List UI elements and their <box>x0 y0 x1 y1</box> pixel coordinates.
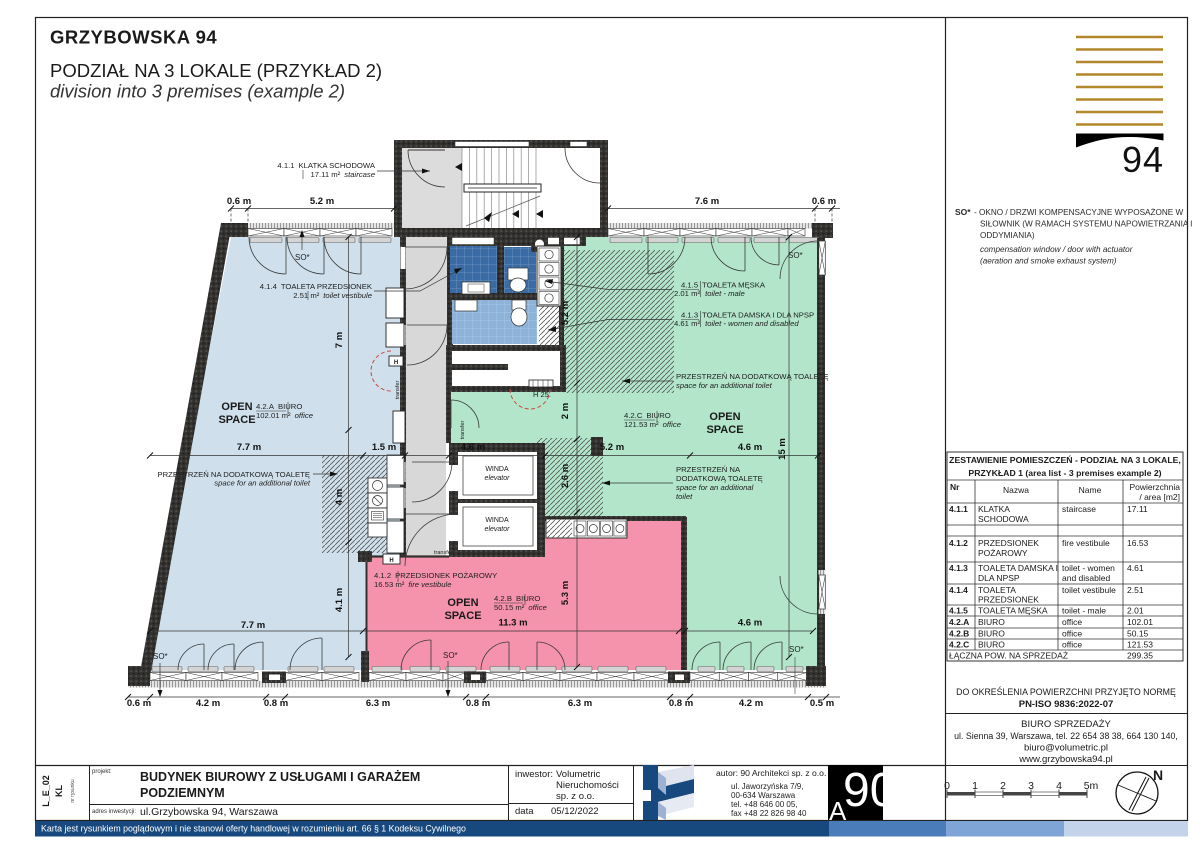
svg-text:4.2 m: 4.2 m <box>196 698 220 709</box>
svg-text:2.01: 2.01 <box>1127 606 1144 616</box>
svg-text:ul. Sienna 39, Warszawa, tel.: ul. Sienna 39, Warszawa, tel. 22 654 38 … <box>954 731 1178 741</box>
svg-text:102.01: 102.01 <box>1127 617 1153 627</box>
svg-text:4.1.4: 4.1.4 <box>949 585 968 595</box>
svg-text:www.grzybowska94.pl: www.grzybowska94.pl <box>1018 754 1112 765</box>
svg-text:4.1.1: 4.1.1 <box>949 504 968 514</box>
svg-text:0.5 m: 0.5 m <box>810 698 834 709</box>
svg-text:2 m: 2 m <box>560 403 571 419</box>
svg-text:SO*: SO* <box>789 645 804 654</box>
svg-text:SO*: SO* <box>295 253 310 262</box>
svg-text:4.6 m: 4.6 m <box>738 618 762 629</box>
svg-text:SIŁOWNIK (W RAMACH SYSTEMU NAP: SIŁOWNIK (W RAMACH SYSTEMU NAPOWIETRZANI… <box>980 220 1192 229</box>
svg-text:PRZEDSIONEK: PRZEDSIONEK <box>978 538 1039 548</box>
svg-text:7.7 m: 7.7 m <box>237 442 261 453</box>
svg-text:PRZEDSIONEK: PRZEDSIONEK <box>978 595 1039 605</box>
svg-text:7.7 m: 7.7 m <box>241 620 265 631</box>
svg-text:toilet - male: toilet - male <box>1062 606 1106 616</box>
svg-text:N: N <box>1153 767 1163 783</box>
svg-text:4.2 m: 4.2 m <box>739 698 763 709</box>
svg-text:4.1.1KLATKA SCHODOWA: 4.1.1KLATKA SCHODOWA <box>277 161 375 170</box>
svg-text:SCHODOWA: SCHODOWA <box>978 514 1029 524</box>
svg-text:compensation window / door wit: compensation window / door with actuator <box>980 245 1133 254</box>
svg-text:11.3 m: 11.3 m <box>498 618 527 629</box>
svg-text:Karta jest rysunkiem poglądowy: Karta jest rysunkiem poglądowym i nie st… <box>41 824 466 834</box>
svg-text:50.15 m²office: 50.15 m²office <box>494 603 547 612</box>
svg-text:5.3 m: 5.3 m <box>560 581 571 605</box>
svg-text:2.51: 2.51 <box>1127 585 1144 595</box>
svg-text:121.53: 121.53 <box>1127 640 1153 650</box>
svg-text:6.3 m: 6.3 m <box>568 698 592 709</box>
svg-text:H 25.: H 25. <box>533 390 551 399</box>
svg-text:94: 94 <box>1122 139 1164 180</box>
svg-text:16.53: 16.53 <box>1127 538 1149 548</box>
svg-text:4.1.4TOALETA PRZEDSIONEK: 4.1.4TOALETA PRZEDSIONEK <box>260 282 373 291</box>
svg-text:DO OKREŚLENIA POWIERZCHNI PRZY: DO OKREŚLENIA POWIERZCHNI PRZYJĘTO NORMĘ <box>956 686 1176 697</box>
svg-text:17.11: 17.11 <box>1127 504 1148 514</box>
svg-text:office: office <box>1062 640 1082 650</box>
svg-text:TOALETA DAMSKA I: TOALETA DAMSKA I <box>978 563 1058 573</box>
svg-text:50.15: 50.15 <box>1127 629 1149 639</box>
svg-text:space for an additional toilet: space for an additional toilet <box>676 381 773 390</box>
svg-text:4.6 m: 4.6 m <box>738 442 762 453</box>
svg-text:DODATKOWĄ TOALETĘ: DODATKOWĄ TOALETĘ <box>676 474 763 483</box>
svg-text:- OKNO / DRZWI KOMPENSACYJNE W: - OKNO / DRZWI KOMPENSACYJNE WYPOSAŻONE … <box>974 207 1184 217</box>
svg-text:fire vestibule: fire vestibule <box>1062 538 1110 548</box>
svg-text:299.35: 299.35 <box>1127 651 1153 661</box>
svg-text:ul. Jaworzyńska 7/9,: ul. Jaworzyńska 7/9, <box>731 782 803 791</box>
svg-text:BIURO: BIURO <box>978 629 1005 639</box>
svg-text:0.8 m: 0.8 m <box>264 698 288 709</box>
svg-text:autor: 90 Architekci sp. z o.: autor: 90 Architekci sp. z o.o. <box>716 768 826 778</box>
svg-text:transfer: transfer <box>434 550 453 556</box>
svg-text:transfer: transfer <box>395 381 401 400</box>
svg-text:POŻAROWY: POŻAROWY <box>978 548 1028 558</box>
svg-text:sp. z o.o.: sp. z o.o. <box>556 791 595 802</box>
svg-text:space for an additional toilet: space for an additional toilet <box>214 479 311 488</box>
svg-text:division into 3 premises (exam: division into 3 premises (example 2) <box>50 81 345 102</box>
svg-text:1.5 m: 1.5 m <box>372 442 396 453</box>
svg-text:PODZIAŁ NA 3 LOKALE (PRZYKŁAD: PODZIAŁ NA 3 LOKALE (PRZYKŁAD 2) <box>50 60 382 81</box>
svg-text:elevator: elevator <box>485 475 511 482</box>
svg-text:SO*: SO* <box>153 652 168 661</box>
svg-text:4.61 m²toilet - women and disa: 4.61 m²toilet - women and disabled <box>674 319 799 328</box>
svg-text:tel. +48 646 00 05,: tel. +48 646 00 05, <box>731 800 798 809</box>
svg-text:05/12/2022: 05/12/2022 <box>551 806 599 817</box>
svg-text:Volumetric: Volumetric <box>556 769 601 780</box>
svg-text:ZESTAWIENIE POMIESZCZEŃ - PODZ: ZESTAWIENIE POMIESZCZEŃ - PODZIAŁ NA 3 L… <box>949 455 1181 465</box>
svg-text:H: H <box>394 360 398 366</box>
svg-text:6.3 m: 6.3 m <box>366 698 390 709</box>
svg-text:5.2 m: 5.2 m <box>600 442 624 453</box>
svg-text:BUDYNEK BIUROWY Z USŁUGAMI I G: BUDYNEK BIUROWY Z USŁUGAMI I GARAŻEM <box>140 769 420 784</box>
svg-text:and disabled: and disabled <box>1062 573 1110 583</box>
svg-text:BIURO SPRZEDAŻY: BIURO SPRZEDAŻY <box>1021 719 1111 730</box>
svg-text:ŁĄCZNA POW. NA SPRZEDAŻ: ŁĄCZNA POW. NA SPRZEDAŻ <box>949 651 1068 661</box>
svg-text:PRZYKŁAD 1 (area list - 3 prem: PRZYKŁAD 1 (area list - 3 premises examp… <box>968 468 1161 478</box>
svg-text:adres inwestycji:: adres inwestycji: <box>92 809 136 815</box>
svg-text:Nieruchomości: Nieruchomości <box>556 780 619 791</box>
svg-text:0.6 m: 0.6 m <box>127 698 151 709</box>
svg-text:space for an additional: space for an additional <box>676 483 754 492</box>
svg-text:BIURO: BIURO <box>978 617 1005 627</box>
svg-text:4 m: 4 m <box>334 489 345 505</box>
svg-text:4.2.C: 4.2.C <box>949 640 969 650</box>
svg-text:L_E_02: L_E_02 <box>41 775 51 807</box>
svg-text:PRZESTRZEŃ NA DODATKOWĄ TOALET: PRZESTRZEŃ NA DODATKOWĄ TOALETĘ <box>676 372 829 381</box>
svg-text:0.8 m: 0.8 m <box>669 698 693 709</box>
svg-text:PN-ISO 9836:2022-07: PN-ISO 9836:2022-07 <box>1019 699 1114 710</box>
svg-text:WINDA: WINDA <box>485 466 509 473</box>
svg-text:projekt:: projekt: <box>92 769 112 775</box>
svg-text:5.2 m: 5.2 m <box>560 301 571 325</box>
svg-text:7.6 m: 7.6 m <box>695 196 719 207</box>
svg-text:4.1 m: 4.1 m <box>334 588 345 612</box>
svg-text:Nazwa: Nazwa <box>1003 485 1029 495</box>
svg-text:office: office <box>1062 617 1082 627</box>
svg-text:0.6 m: 0.6 m <box>227 196 251 207</box>
svg-text:/ area [m2]: / area [m2] <box>1139 492 1180 502</box>
svg-text:TOALETA MĘSKA: TOALETA MĘSKA <box>978 606 1048 616</box>
svg-text:KLATKA: KLATKA <box>978 504 1010 514</box>
svg-text:5.2 m: 5.2 m <box>310 196 334 207</box>
svg-text:GRZYBOWSKA 94: GRZYBOWSKA 94 <box>50 27 217 48</box>
svg-text:PODZIEMNYM: PODZIEMNYM <box>140 786 225 800</box>
svg-text:4.1.3: 4.1.3 <box>949 563 968 573</box>
svg-text:Powierzchnia: Powierzchnia <box>1129 482 1180 492</box>
svg-text:4.6 m: 4.6 m <box>461 442 485 453</box>
svg-text:TOALETA: TOALETA <box>978 585 1016 595</box>
svg-text:102.01 m²office: 102.01 m²office <box>256 411 313 420</box>
svg-text:4.2.ABIURO: 4.2.ABIURO <box>256 402 302 411</box>
svg-text:5m: 5m <box>1084 780 1099 792</box>
svg-text:2.6 m: 2.6 m <box>560 464 571 488</box>
svg-text:OPEN: OPEN <box>709 411 740 423</box>
svg-text:ul.Grzybowska 94, Warszawa: ul.Grzybowska 94, Warszawa <box>140 806 278 818</box>
svg-text:4.2.BBIURO: 4.2.BBIURO <box>494 594 540 603</box>
svg-text:fax +48 22 826 98 40: fax +48 22 826 98 40 <box>731 809 807 818</box>
svg-text:7 m: 7 m <box>334 332 345 348</box>
svg-text:SO*: SO* <box>788 251 803 260</box>
svg-text:elevator: elevator <box>485 526 511 533</box>
svg-text:SO*: SO* <box>955 207 971 217</box>
svg-text:SO*: SO* <box>443 651 458 660</box>
svg-text:inwestor:: inwestor: <box>515 769 553 780</box>
svg-text:KL: KL <box>54 785 64 797</box>
svg-text:4.1.5: 4.1.5 <box>949 606 968 616</box>
svg-text:SPACE: SPACE <box>218 414 255 426</box>
svg-text:15 m: 15 m <box>777 438 788 460</box>
svg-text:00-634 Warszawa: 00-634 Warszawa <box>731 791 796 800</box>
svg-text:OPEN: OPEN <box>221 401 252 413</box>
svg-text:2.01 m²toilet - male: 2.01 m²toilet - male <box>674 289 745 298</box>
svg-text:0.6 m: 0.6 m <box>812 196 836 207</box>
svg-text:nr rysunku: nr rysunku <box>70 779 76 803</box>
svg-text:BIURO: BIURO <box>978 640 1005 650</box>
svg-text:OPEN: OPEN <box>447 597 478 609</box>
svg-text:Nr: Nr <box>950 482 960 492</box>
svg-text:4.2.CBIURO: 4.2.CBIURO <box>624 411 671 420</box>
svg-text:4.2.B: 4.2.B <box>949 629 969 639</box>
svg-text:16.53 m²fire vestibule: 16.53 m²fire vestibule <box>374 580 452 589</box>
svg-text:H: H <box>389 558 393 564</box>
svg-text:(aeration and smoke exhaust sy: (aeration and smoke exhaust system) <box>980 257 1117 266</box>
svg-text:WINDA: WINDA <box>485 517 509 524</box>
svg-text:DLA NPSP: DLA NPSP <box>978 573 1020 583</box>
svg-text:PRZESTRZEŃ NA: PRZESTRZEŃ NA <box>676 465 741 474</box>
svg-text:ODDYMIANIA): ODDYMIANIA) <box>980 231 1035 240</box>
svg-text:Name: Name <box>1079 485 1102 495</box>
svg-text:staircase: staircase <box>1062 504 1096 514</box>
svg-text:4.2.A: 4.2.A <box>949 617 969 627</box>
svg-text:toilet - women: toilet - women <box>1062 563 1115 573</box>
svg-text:4.1.2: 4.1.2 <box>949 538 968 548</box>
svg-text:0.8 m: 0.8 m <box>466 698 490 709</box>
svg-text:transfer: transfer <box>460 421 466 440</box>
svg-text:office: office <box>1062 629 1082 639</box>
svg-text:121.53 m²office: 121.53 m²office <box>624 420 681 429</box>
svg-text:SPACE: SPACE <box>706 424 743 436</box>
svg-text:SPACE: SPACE <box>444 610 481 622</box>
svg-text:biuro@volumetric.pl: biuro@volumetric.pl <box>1024 743 1108 754</box>
svg-text:data: data <box>515 806 534 817</box>
svg-text:toilet vestibule: toilet vestibule <box>1062 585 1116 595</box>
svg-text:toilet: toilet <box>676 492 693 501</box>
svg-text:2.51 m²toilet vestibule: 2.51 m²toilet vestibule <box>293 291 372 300</box>
svg-text:4.61: 4.61 <box>1127 563 1144 573</box>
